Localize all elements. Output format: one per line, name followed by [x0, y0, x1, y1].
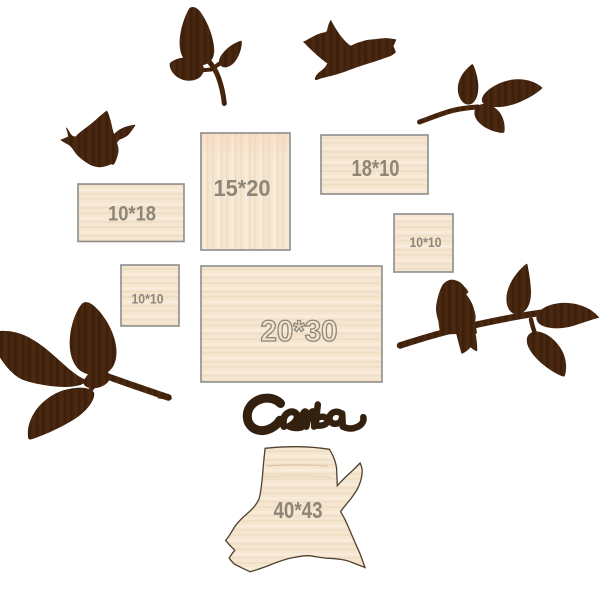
svg-text:20*30: 20*30 — [261, 315, 338, 348]
svg-text:10*18: 10*18 — [108, 203, 156, 226]
svg-text:18*10: 18*10 — [352, 155, 400, 181]
svg-text:40*43: 40*43 — [274, 497, 323, 523]
svg-text:15*20: 15*20 — [214, 175, 271, 201]
svg-text:10*10: 10*10 — [132, 291, 164, 307]
svg-text:10*10: 10*10 — [410, 234, 442, 250]
